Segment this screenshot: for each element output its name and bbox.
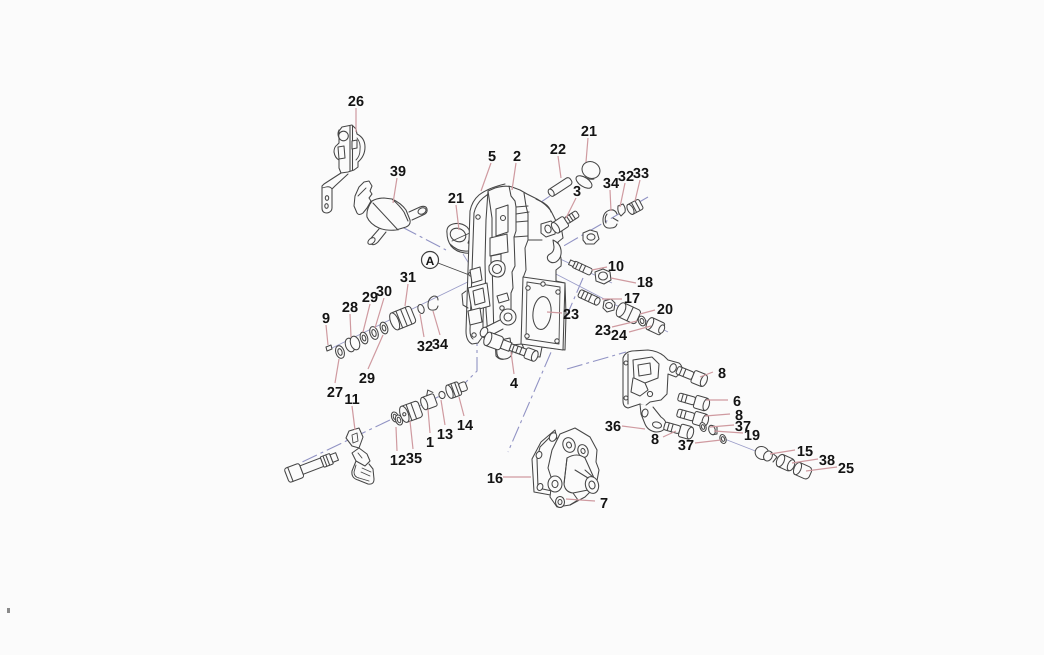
svg-text:8: 8 (651, 432, 659, 448)
svg-text:21: 21 (448, 191, 464, 207)
svg-text:3: 3 (573, 184, 581, 200)
svg-text:29: 29 (359, 371, 375, 387)
svg-text:38: 38 (819, 453, 835, 469)
svg-text:22: 22 (550, 142, 566, 158)
svg-text:5: 5 (488, 149, 496, 165)
svg-text:1: 1 (426, 435, 434, 451)
svg-text:31: 31 (400, 270, 416, 286)
svg-text:A: A (426, 254, 435, 268)
svg-text:37: 37 (678, 438, 694, 454)
svg-text:4: 4 (510, 376, 518, 392)
svg-text:15: 15 (797, 444, 813, 460)
svg-text:19: 19 (744, 428, 760, 444)
svg-text:28: 28 (342, 300, 358, 316)
svg-text:34: 34 (432, 337, 448, 353)
svg-text:17: 17 (624, 291, 640, 307)
svg-text:39: 39 (390, 164, 406, 180)
svg-text:34: 34 (603, 176, 619, 192)
svg-text:8: 8 (718, 366, 726, 382)
svg-text:25: 25 (838, 461, 854, 477)
svg-text:14: 14 (457, 418, 473, 434)
svg-text:26: 26 (348, 94, 364, 110)
svg-text:30: 30 (376, 284, 392, 300)
svg-text:33: 33 (633, 166, 649, 182)
svg-text:23: 23 (595, 323, 611, 339)
svg-text:24: 24 (611, 328, 627, 344)
svg-text:23: 23 (563, 307, 579, 323)
svg-text:12: 12 (390, 453, 406, 469)
svg-text:27: 27 (327, 385, 343, 401)
svg-text:35: 35 (406, 451, 422, 467)
svg-text:32: 32 (417, 339, 433, 355)
svg-text:10: 10 (608, 259, 624, 275)
svg-text:21: 21 (581, 124, 597, 140)
svg-text:18: 18 (637, 275, 653, 291)
svg-text:9: 9 (322, 311, 330, 327)
svg-text:20: 20 (657, 302, 673, 318)
svg-text:13: 13 (437, 427, 453, 443)
svg-text:36: 36 (605, 419, 621, 435)
svg-text:16: 16 (487, 471, 503, 487)
svg-text:11: 11 (344, 392, 359, 408)
svg-text:7: 7 (600, 496, 608, 512)
svg-text:2: 2 (513, 149, 521, 165)
svg-text:32: 32 (618, 169, 634, 185)
